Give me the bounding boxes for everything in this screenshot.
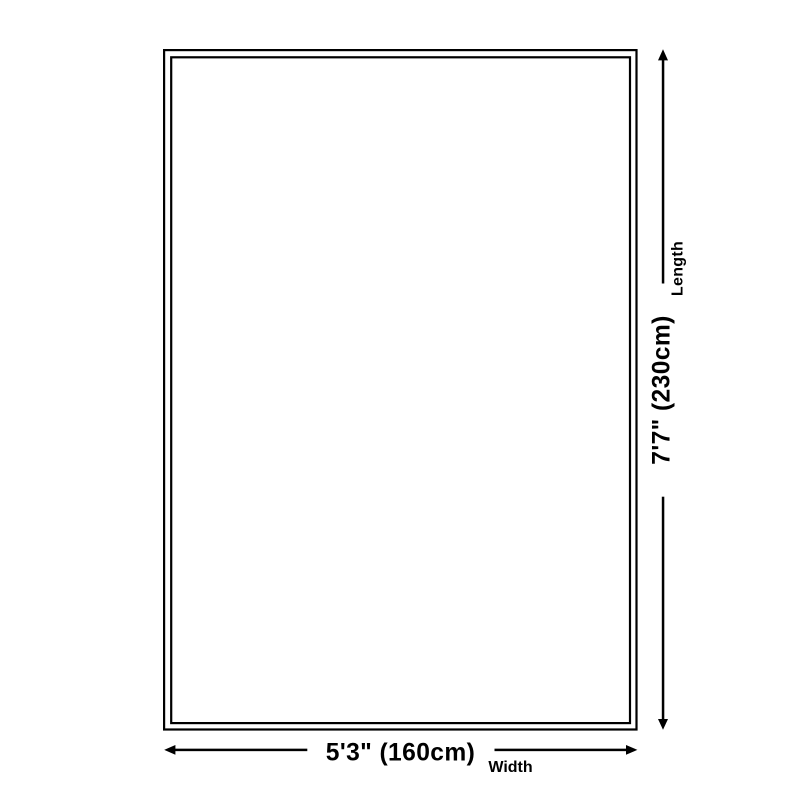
svg-text:7'7" (230cm): 7'7" (230cm) [649,315,676,464]
svg-text:Length: Length [670,241,687,296]
svg-text:Width: Width [488,759,532,776]
svg-text:5'3" (160cm): 5'3" (160cm) [326,739,475,766]
